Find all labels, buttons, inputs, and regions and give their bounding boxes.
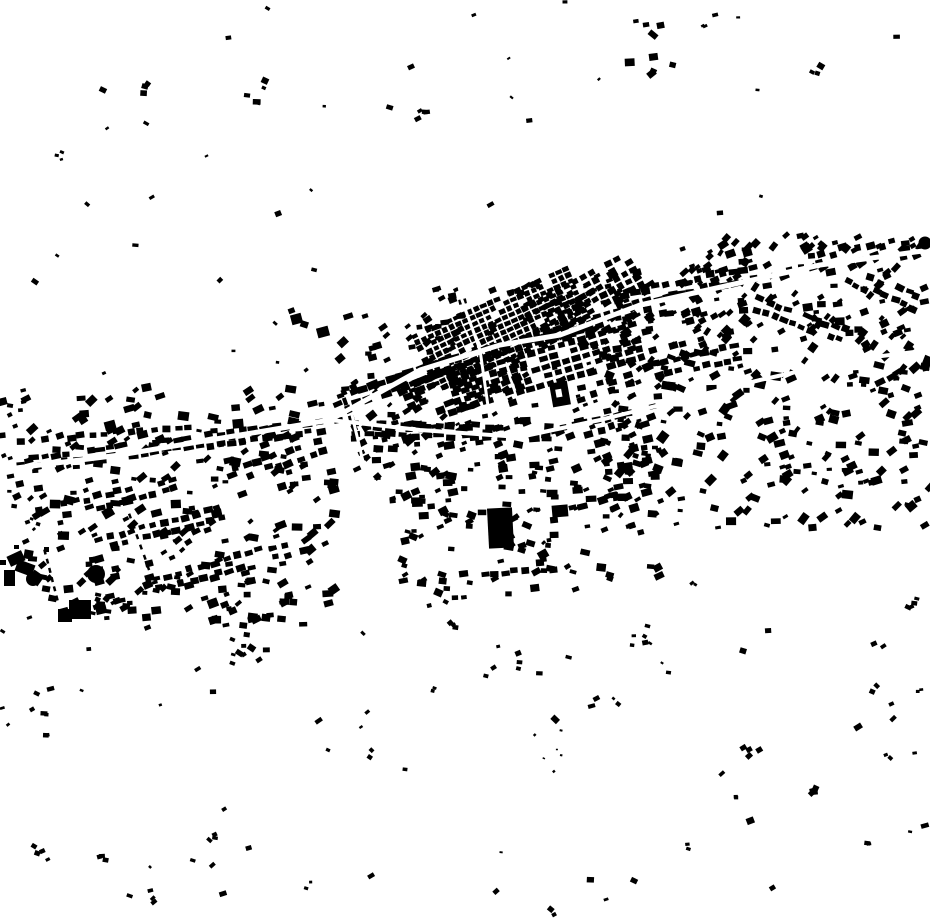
courtyard-building	[549, 381, 571, 408]
figure-ground-svg	[0, 0, 930, 924]
road	[352, 415, 402, 600]
buildings-layer	[0, 0, 930, 917]
figure-ground-map	[0, 0, 930, 924]
landmark-dot	[87, 565, 105, 583]
landmark-dot	[26, 572, 40, 586]
